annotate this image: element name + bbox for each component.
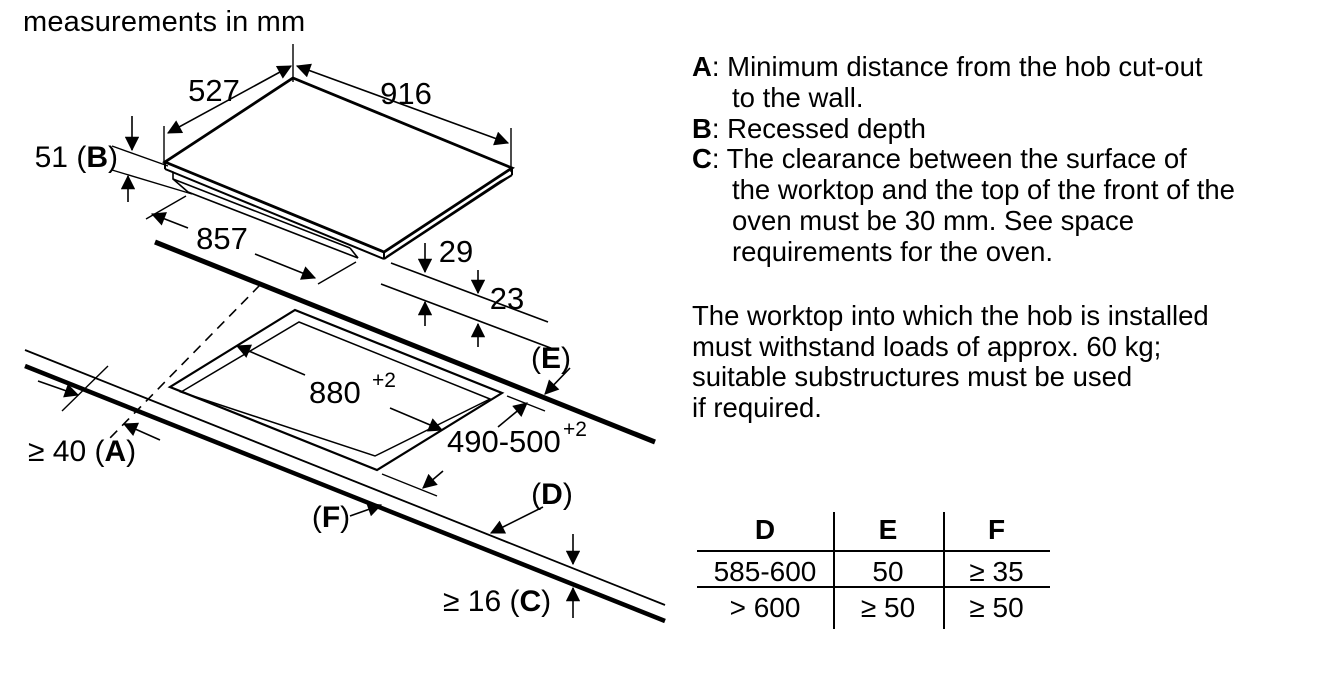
svg-text:880: 880 bbox=[309, 375, 361, 410]
svg-text:51 (B): 51 (B) bbox=[35, 141, 118, 174]
table-divider bbox=[697, 550, 1050, 552]
svg-text:23: 23 bbox=[490, 281, 524, 316]
svg-text:29: 29 bbox=[439, 234, 473, 269]
svg-text:≥ 16 (C): ≥ 16 (C) bbox=[443, 585, 551, 618]
svg-text:≥ 40 (A): ≥ 40 (A) bbox=[28, 435, 136, 468]
svg-text:527: 527 bbox=[188, 73, 240, 108]
table-cell: > 600 bbox=[697, 592, 833, 624]
label-E: (E) bbox=[531, 342, 571, 394]
table-cell: ≥ 50 bbox=[943, 592, 1050, 624]
definition-letter: C bbox=[692, 143, 712, 174]
definition-text: oven must be 30 mm. See space bbox=[692, 206, 1302, 237]
definition-letter: B bbox=[692, 113, 712, 144]
definition-text: to the wall. bbox=[692, 83, 1302, 114]
definition-text: Minimum distance from the hob cut-out bbox=[727, 51, 1202, 82]
svg-text:(D): (D) bbox=[531, 478, 573, 511]
definitions-list: A: Minimum distance from the hob cut-out… bbox=[692, 52, 1302, 268]
worktop-load-note: The worktop into which the hob is instal… bbox=[692, 301, 1312, 423]
definition-text: Recessed depth bbox=[727, 113, 926, 144]
table-cell: ≥ 35 bbox=[943, 556, 1050, 588]
svg-text:(E): (E) bbox=[531, 342, 571, 375]
svg-text:+2: +2 bbox=[563, 418, 587, 441]
hob-reference-line-upper bbox=[391, 263, 548, 322]
table-cell: ≥ 50 bbox=[833, 592, 943, 624]
table-header-D: D bbox=[697, 514, 833, 546]
definition-text: requirements for the oven. bbox=[692, 237, 1302, 268]
hob-reference-line-lower bbox=[381, 284, 556, 350]
manual-page: 880 +2 490-500 +2 ≥ 40 (A) (E) (D) bbox=[0, 0, 1322, 686]
installation-diagram: 880 +2 490-500 +2 ≥ 40 (A) (E) (D) bbox=[0, 0, 690, 660]
definition-C: C: The clearance between the surface of … bbox=[692, 144, 1302, 267]
dimension-40-A: ≥ 40 (A) bbox=[28, 366, 160, 468]
definition-letter: A bbox=[692, 51, 712, 82]
table-header-E: E bbox=[833, 514, 943, 546]
table-cell: 50 bbox=[833, 556, 943, 588]
label-D: (D) bbox=[491, 478, 573, 533]
page-title: measurements in mm bbox=[23, 6, 305, 39]
svg-text:916: 916 bbox=[380, 76, 432, 111]
dimension-29: 29 bbox=[425, 234, 473, 326]
definition-text: the worktop and the top of the front of … bbox=[692, 175, 1302, 206]
svg-text:+2: +2 bbox=[372, 369, 396, 392]
table-cell: 585-600 bbox=[697, 556, 833, 588]
definition-text: The clearance between the surface of bbox=[727, 143, 1187, 174]
svg-text:(F): (F) bbox=[312, 501, 350, 534]
dimension-880: 880 +2 bbox=[237, 346, 442, 430]
definition-B: B: Recessed depth bbox=[692, 114, 1302, 145]
svg-text:490-500: 490-500 bbox=[447, 424, 561, 459]
table-header-F: F bbox=[943, 514, 1050, 546]
svg-text:857: 857 bbox=[196, 221, 248, 256]
definition-A: A: Minimum distance from the hob cut-out… bbox=[692, 52, 1302, 114]
